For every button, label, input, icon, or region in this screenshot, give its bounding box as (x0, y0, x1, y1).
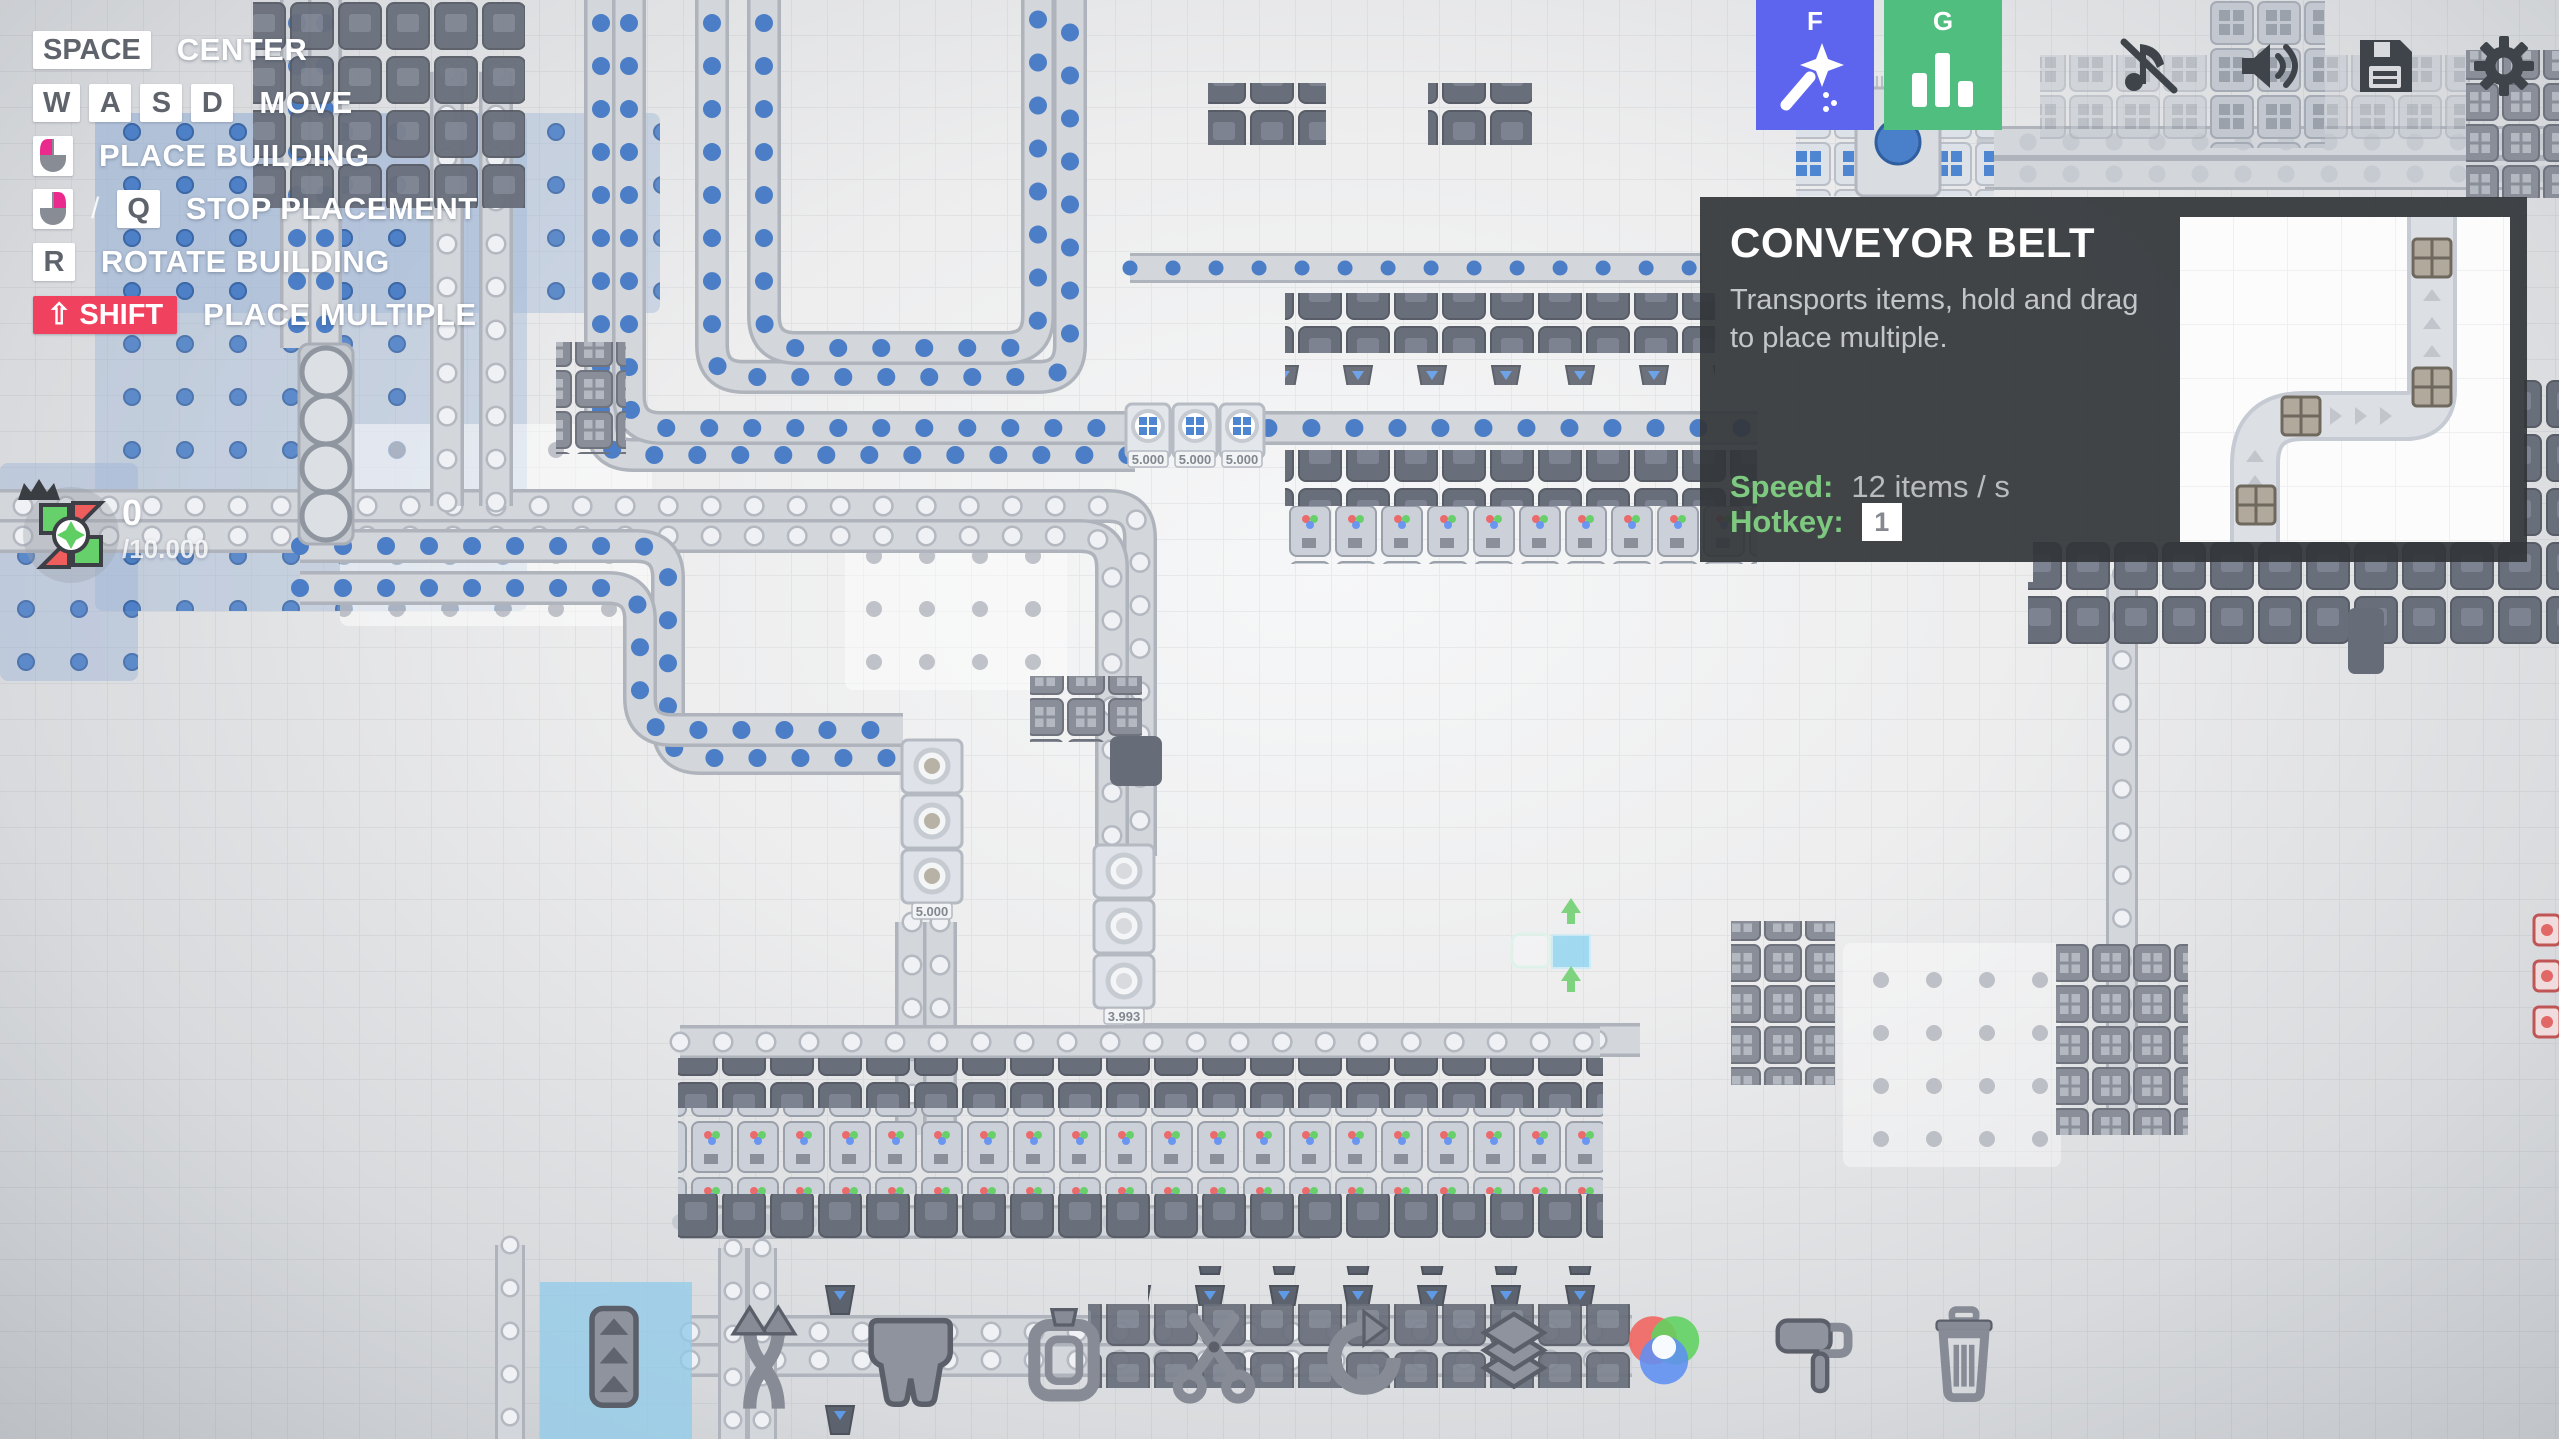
key-shift-badge: ⇧ SHIFT (33, 296, 177, 334)
red-item-tiles (2534, 915, 2559, 1037)
toolbar-item-cutter[interactable] (1159, 1303, 1269, 1413)
goal-counter: 0 /10.000 (122, 492, 209, 565)
trash-icon (1914, 1303, 2014, 1413)
counter-label: 5.000 (1179, 452, 1212, 467)
toolbar-item-belt[interactable] (559, 1303, 669, 1413)
key-space: SPACE (33, 31, 151, 69)
hint-label: PLACE MULTIPLE (203, 297, 476, 333)
key-r: R (33, 243, 75, 281)
tooltip-hotkey-row: Hotkey: 1 (1730, 503, 1902, 541)
hotkey-value-badge: 1 (1862, 503, 1902, 541)
toolbar-item-painter[interactable] (1759, 1303, 1869, 1413)
hint-row-rotate: R ROTATE BUILDING (33, 242, 478, 282)
mixer-icon (1614, 1303, 1714, 1413)
speed-value: 12 items / s (1851, 469, 2010, 505)
rotator-column (299, 344, 353, 544)
hint-label: PLACE BUILDING (99, 138, 370, 174)
building-tooltip-panel: CONVEYOR BELT Transports items, hold and… (1700, 197, 2527, 562)
counter-label: 3.993 (1108, 1009, 1141, 1024)
goal-total: /10.000 (122, 534, 209, 565)
toolbar-item-balancer[interactable] (709, 1303, 819, 1413)
separator: / (91, 192, 99, 226)
key-w: W (33, 84, 80, 122)
stacker-icon (1464, 1303, 1564, 1413)
counter-label: 5.000 (1226, 452, 1259, 467)
painter-icon (1764, 1303, 1864, 1413)
miner-icon (1014, 1303, 1114, 1413)
game-screen: { "hints": { "rows": [ {"keys": ["SPACE"… (0, 0, 2559, 1439)
blueprint-wand-button[interactable]: F (1756, 0, 1874, 130)
hint-label: STOP PLACEMENT (186, 191, 478, 227)
tunnel-icon (864, 1303, 964, 1413)
key-d: D (191, 84, 233, 122)
hint-row-place-multiple: ⇧ SHIFT PLACE MULTIPLE (33, 295, 478, 335)
statistics-button[interactable]: G (1884, 0, 2002, 130)
save-icon[interactable] (2354, 34, 2418, 98)
hint-label: ROTATE BUILDING (101, 244, 390, 280)
counter-label: 5.000 (916, 904, 949, 919)
hint-row-move: W A S D MOVE (33, 83, 478, 123)
hotkey-letter: F (1807, 6, 1823, 37)
magic-wand-icon (1770, 37, 1860, 123)
toolbar-item-miner[interactable] (1009, 1303, 1119, 1413)
cutter-icon (1164, 1303, 1264, 1413)
hotkey-letter: G (1933, 6, 1953, 37)
balancer-icon (714, 1303, 814, 1413)
toolbar-item-mixer[interactable] (1609, 1303, 1719, 1413)
hint-row-place-building: PLACE BUILDING (33, 136, 478, 176)
hint-label: MOVE (259, 85, 352, 121)
music-muted-icon[interactable] (2118, 34, 2182, 98)
toolbar-item-rotator[interactable] (1309, 1303, 1419, 1413)
toolbar-item-tunnel[interactable] (859, 1303, 969, 1413)
key-s: S (140, 84, 182, 122)
tooltip-speed-row: Speed: 12 items / s (1730, 469, 2010, 505)
key-a: A (89, 84, 131, 122)
belt-icon (564, 1303, 664, 1413)
keyboard-hints-panel: SPACE CENTER W A S D MOVE PLACE BUILDING (33, 30, 478, 348)
counter-label: 5.000 (1132, 452, 1165, 467)
rotator-icon (1314, 1303, 1414, 1413)
settings-gear-icon[interactable] (2472, 34, 2536, 98)
hint-row-center: SPACE CENTER (33, 30, 478, 70)
hint-row-stop-placement: / Q STOP PLACEMENT (33, 189, 478, 229)
mouse-right-icon (33, 189, 73, 229)
key-q: Q (117, 190, 160, 228)
building-preview-image (2180, 217, 2510, 542)
tooltip-title: CONVEYOR BELT (1730, 219, 2095, 267)
bar-chart-icon (1898, 37, 1988, 123)
hotkey-label: Hotkey: (1730, 504, 1844, 540)
mouse-left-icon (33, 136, 73, 176)
hint-label: CENTER (177, 32, 307, 68)
toolbar-item-trash[interactable] (1909, 1303, 2019, 1413)
goal-current: 0 (122, 492, 209, 534)
top-right-icon-bar (2118, 34, 2536, 98)
speed-label: Speed: (1730, 469, 1833, 505)
toolbar-item-stacker[interactable] (1459, 1303, 1569, 1413)
volume-icon[interactable] (2236, 34, 2300, 98)
tooltip-description: Transports items, hold and drag to place… (1730, 281, 2160, 357)
